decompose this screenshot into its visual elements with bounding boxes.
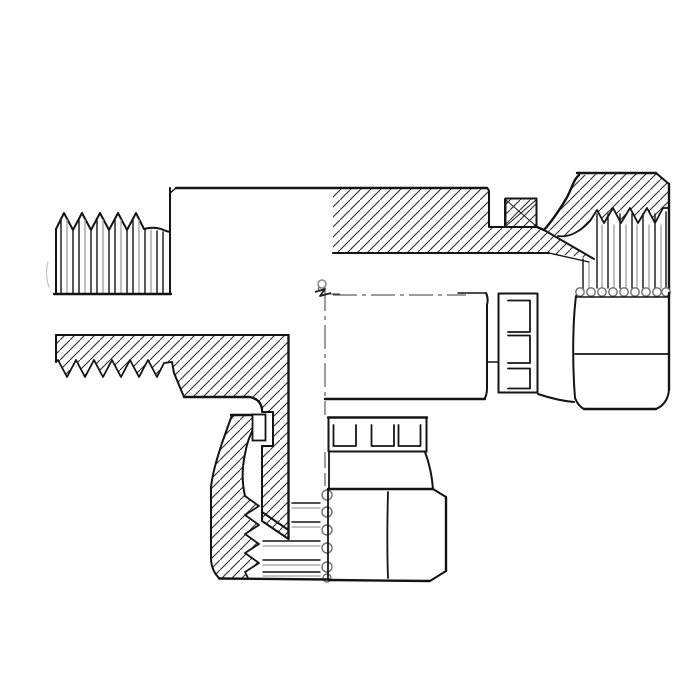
slotted-collar-bottom [329,418,427,452]
body-upper-wall-section [170,188,594,294]
swivel-nut-right-exterior [325,293,669,409]
drawing-canvas [0,0,700,700]
slotted-collar-right [499,294,538,393]
fitting-cross-section-figure [0,0,700,700]
swivel-nut-right-section [537,173,670,296]
swivel-nut-bottom-exterior [328,418,446,582]
thread-flank-lines-left [61,220,163,293]
thread-crest-circles-right [576,288,670,296]
tee-fitting-drawing [0,0,700,700]
centerlines [325,287,466,486]
retaining-ring-bottom [253,415,266,441]
center-intersection-marker [315,280,340,296]
thread-flank-lines-right-nut [583,212,666,290]
male-thread-left [47,213,171,294]
thread-crest-circles-bottom [322,490,332,582]
